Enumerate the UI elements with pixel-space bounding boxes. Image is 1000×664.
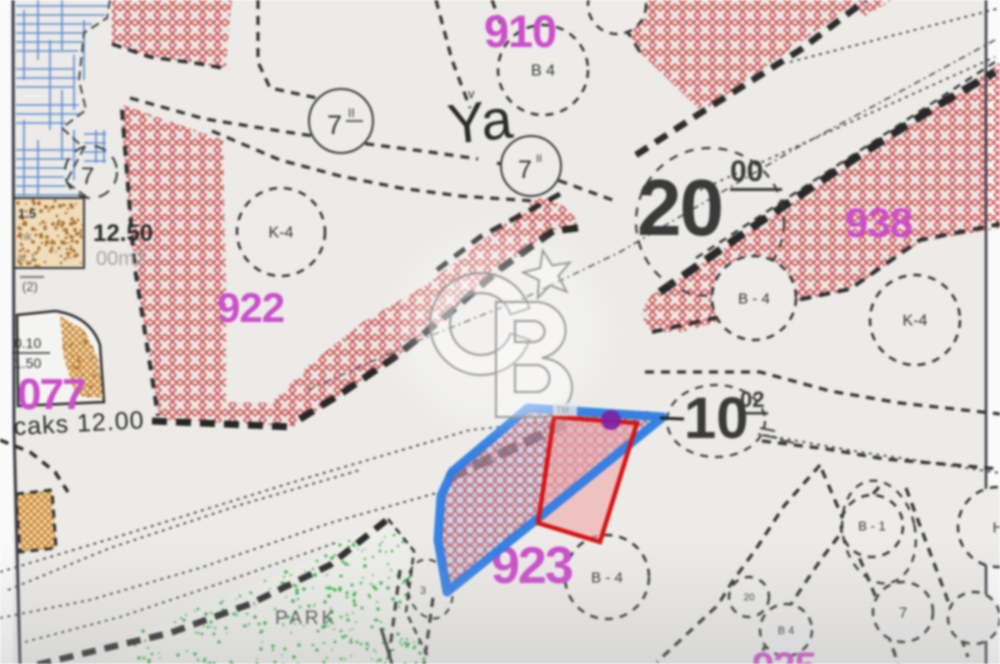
svg-text:00: 00 xyxy=(730,155,763,188)
svg-text:1.50: 1.50 xyxy=(14,355,41,371)
svg-text:7: 7 xyxy=(81,163,94,190)
svg-text:0.10: 0.10 xyxy=(14,335,41,351)
svg-text:922: 922 xyxy=(217,284,284,331)
svg-text:ar 1: ar 1 xyxy=(17,252,36,264)
svg-text:077: 077 xyxy=(17,370,85,419)
svg-text:1.5: 1.5 xyxy=(18,206,36,221)
svg-text:00m2: 00m2 xyxy=(96,248,146,270)
svg-text:B 4: B 4 xyxy=(531,63,555,80)
svg-text:20: 20 xyxy=(637,163,722,252)
svg-text:02: 02 xyxy=(740,387,764,412)
svg-text:7: 7 xyxy=(518,156,532,184)
svg-text:K-4: K-4 xyxy=(269,225,294,242)
svg-text:(2): (2) xyxy=(22,279,38,294)
svg-text:Ya: Ya xyxy=(445,86,516,155)
svg-text:II: II xyxy=(536,153,542,165)
svg-text:938: 938 xyxy=(845,199,913,246)
svg-text:B - 4: B - 4 xyxy=(738,290,770,307)
svg-text:B - 1: B - 1 xyxy=(858,519,885,534)
svg-text:K-4: K-4 xyxy=(903,313,928,330)
svg-text:910: 910 xyxy=(484,6,556,57)
svg-text:nk: nk xyxy=(20,231,32,243)
svg-text:TM: TM xyxy=(556,405,569,415)
svg-text:7: 7 xyxy=(327,110,342,140)
svg-text:v: v xyxy=(468,86,475,101)
svg-text:12.50: 12.50 xyxy=(93,220,153,247)
svg-text:H: H xyxy=(993,519,1000,536)
svg-text:10: 10 xyxy=(684,386,749,451)
svg-text:II: II xyxy=(348,106,355,120)
